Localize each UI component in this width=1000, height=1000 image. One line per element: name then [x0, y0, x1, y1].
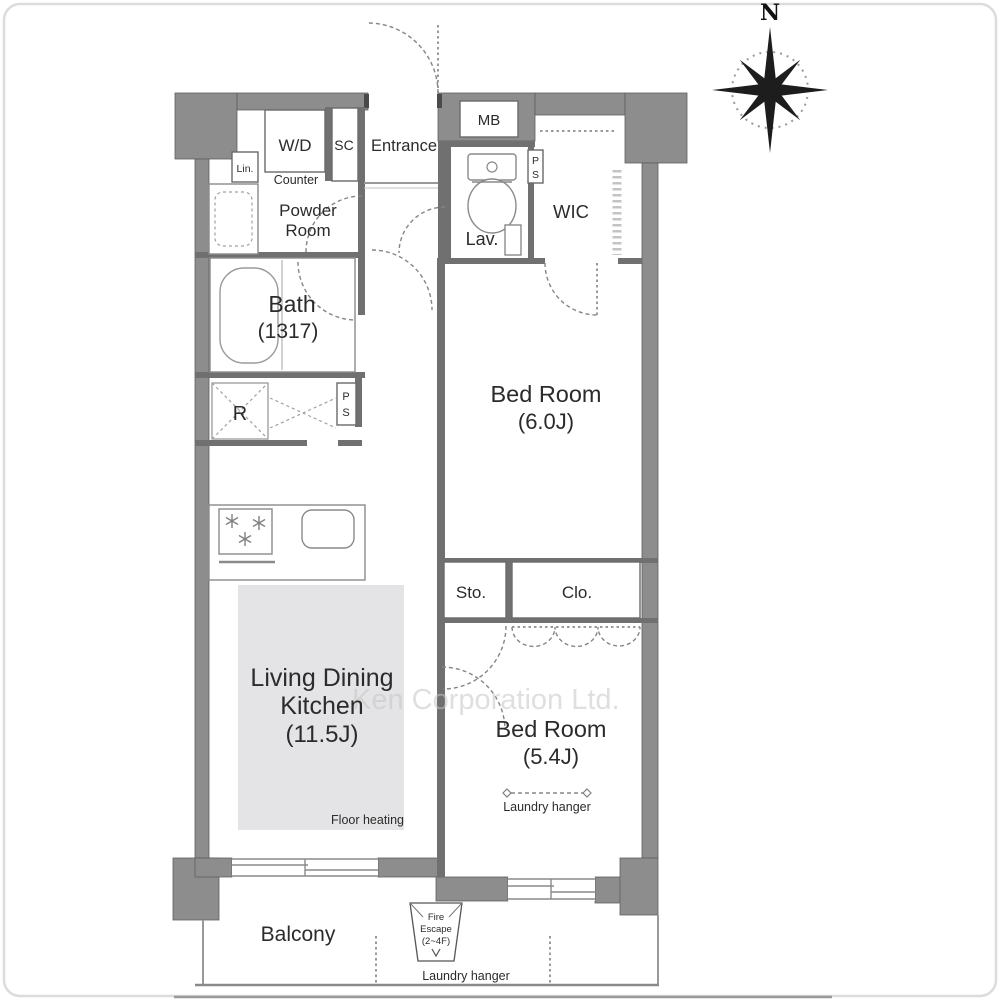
wall-segment: [195, 159, 209, 858]
storage-label: Sto.: [456, 583, 486, 602]
balcony-laundry-hanger-label: Laundry hanger: [422, 969, 510, 983]
linen-label: Lin.: [237, 163, 254, 175]
wall-segment: [195, 858, 232, 877]
meter-box-label: MB: [478, 112, 501, 129]
storage-door-swing: [443, 626, 506, 689]
wall-segment: [642, 163, 658, 858]
bath-label-line2: (1317): [258, 320, 319, 343]
wall-segment: [378, 858, 442, 877]
wall-segment: [436, 877, 508, 901]
bedroom2-label-line2: (5.4J): [523, 744, 579, 769]
compass-north-label: N: [760, 0, 780, 26]
wall-segment: [338, 440, 362, 446]
compass-ew-point: [712, 83, 828, 97]
wall-segment: [625, 93, 687, 163]
door-jamb: [364, 94, 369, 108]
wall-segment: [445, 141, 535, 147]
entrance-label: Entrance: [371, 137, 437, 155]
entrance-door-swing: [368, 23, 438, 93]
ldk-label-line3: (11.5J): [286, 721, 359, 748]
toilet: [468, 154, 516, 233]
page-border: [4, 4, 996, 996]
balcony-label: Balcony: [261, 923, 336, 946]
wall-segment: [437, 623, 445, 877]
wall-segment: [438, 141, 445, 258]
wall-segment: [618, 258, 642, 264]
wall-segment: [535, 93, 625, 115]
ldk-door-swing: [372, 250, 432, 310]
bath-label-line1: Bath: [268, 291, 315, 317]
wall-segment: [437, 258, 445, 560]
powder-room-label-line2: Room: [285, 221, 330, 240]
wall-segment: [534, 258, 545, 264]
wall-segment: [358, 107, 365, 252]
closet-label: Clo.: [562, 583, 592, 602]
counter-label: Counter: [274, 173, 318, 187]
laundry-hanger-fixture: [503, 789, 591, 797]
floor-heating-label: Floor heating: [331, 813, 404, 827]
floor-plan-canvas: N Ken Corporation Ltd. W/D Counter Powde…: [0, 0, 1000, 1000]
pipe-space2-label-s: S: [532, 169, 539, 181]
wd-label: W/D: [278, 136, 311, 155]
washbasin: [209, 184, 258, 254]
wall-segment: [445, 258, 540, 264]
shoe-closet-label: SC: [334, 137, 353, 153]
closet-curtain: [512, 627, 640, 646]
wall-segment: [175, 93, 237, 159]
fire-escape-label-line2: Escape: [420, 924, 452, 935]
door-jamb: [437, 94, 442, 108]
floor-plan-page: N Ken Corporation Ltd. W/D Counter Powde…: [0, 0, 1000, 1000]
ldk-label-line1: Living Dining: [250, 664, 393, 692]
fire-escape-label-line1: Fire: [428, 912, 444, 923]
bedroom1-label-line1: Bed Room: [490, 381, 601, 407]
fire-escape-label-line3: (2~4F): [422, 936, 450, 947]
bedroom1-label-line2: (6.0J): [518, 409, 574, 434]
bedroom1-door-swing: [545, 263, 597, 315]
compass: N: [709, 0, 831, 153]
wall-segment: [445, 147, 451, 258]
lav-cabinet: [505, 225, 521, 255]
powder-room-label-line1: Powder: [279, 201, 337, 220]
wall-segment: [195, 440, 307, 446]
refrigerator-label: R: [233, 403, 247, 425]
lav-label: Lav.: [466, 229, 499, 249]
wall-segment: [437, 618, 658, 623]
wall-segment: [325, 107, 332, 181]
kitchen-counter: [209, 505, 365, 580]
wall-segment: [195, 372, 365, 378]
ldk-label-line2: Kitchen: [280, 692, 363, 720]
wall-segment: [358, 252, 365, 315]
bedroom2-laundry-hanger-label: Laundry hanger: [503, 800, 591, 814]
wall-segment: [620, 858, 658, 915]
wall-segment: [595, 877, 622, 903]
wic-label: WIC: [553, 201, 589, 222]
pipe-space-label-s: S: [342, 407, 349, 419]
pipe-space2-label-p: P: [532, 155, 539, 167]
bedroom2-label-line1: Bed Room: [495, 716, 606, 742]
pipe-space-label-p: P: [342, 391, 349, 403]
